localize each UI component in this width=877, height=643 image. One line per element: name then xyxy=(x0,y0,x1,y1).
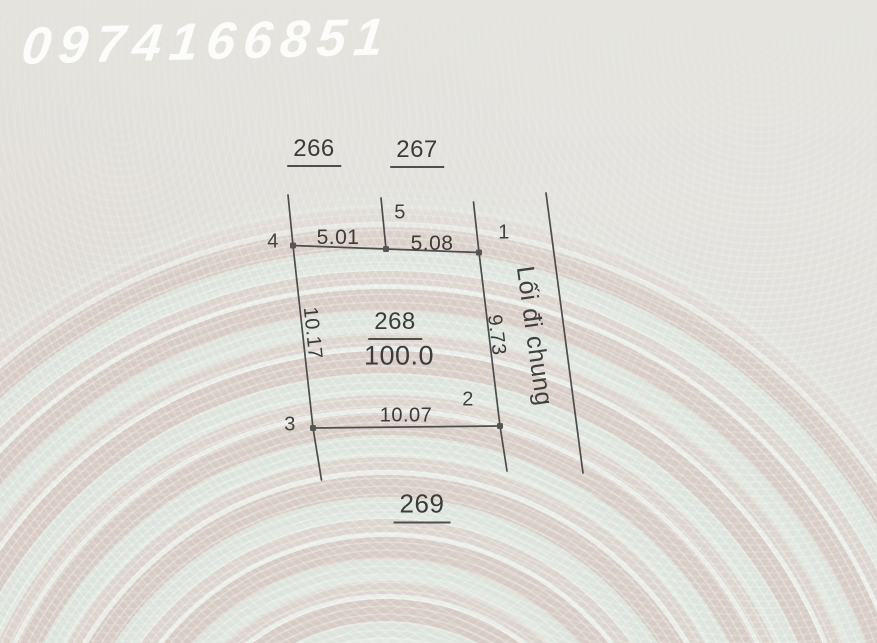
dimension-top-right: 5.08 xyxy=(411,232,454,256)
main-plot-area-label: 100.0 xyxy=(364,341,434,372)
dimension-bottom: 10.07 xyxy=(380,405,433,428)
tick-above-vertex-5 xyxy=(381,198,386,249)
vertex-1-label: 1 xyxy=(498,222,510,245)
dimension-right: 9.73 xyxy=(482,313,510,356)
extension-below-vertex-2 xyxy=(500,426,507,471)
vertex-4-label: 4 xyxy=(267,231,279,254)
tick-above-vertex-1 xyxy=(474,202,480,253)
parcel-boundary-drawing xyxy=(0,0,877,643)
main-plot-id-label: 268 xyxy=(368,308,422,340)
vertex-5-label: 5 xyxy=(394,202,406,225)
dimension-top-left: 5.01 xyxy=(317,226,360,250)
phone-watermark: 0974166851 xyxy=(19,7,395,77)
adjacent-plot-266-label: 266 xyxy=(287,135,341,167)
easement-boundary-line xyxy=(546,193,583,473)
extension-below-vertex-3 xyxy=(313,428,322,480)
tick-above-vertex-4 xyxy=(288,195,293,246)
vertex-2-label: 2 xyxy=(462,389,474,412)
adjacent-plot-267-label: 267 xyxy=(390,136,444,168)
vertex-3-label: 3 xyxy=(284,414,296,437)
cadastral-sketch-photo: 266 267 269 268 100.0 5.01 5.08 10.17 9.… xyxy=(0,0,877,643)
adjacent-plot-269-label: 269 xyxy=(394,489,451,524)
